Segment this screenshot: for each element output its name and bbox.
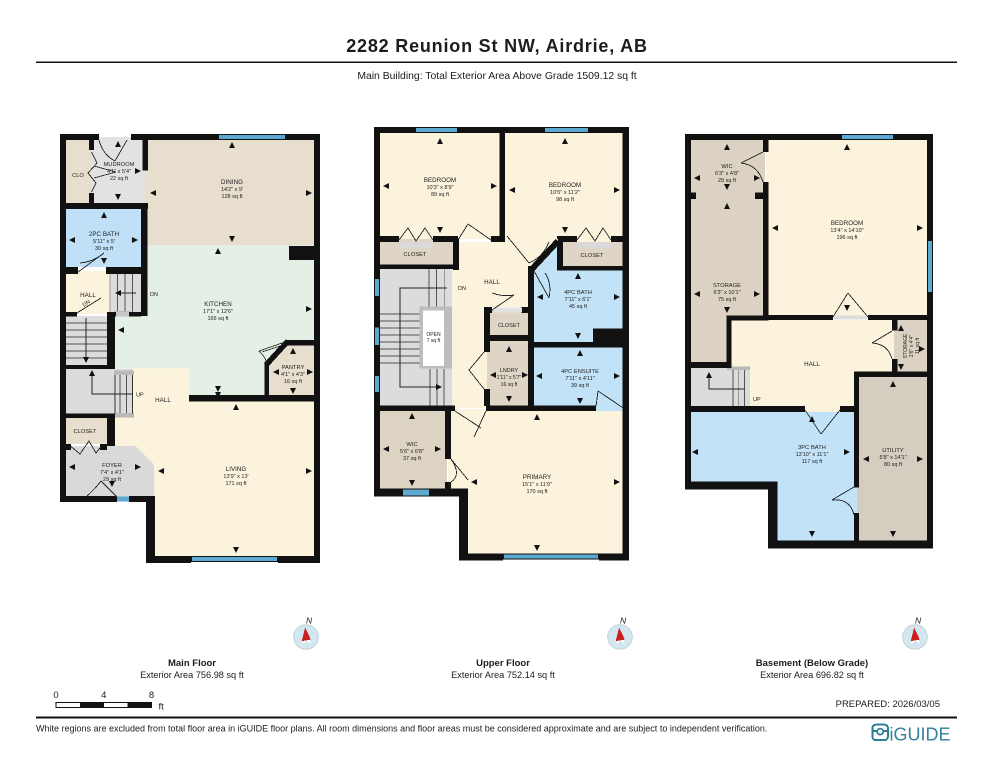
svg-text:CLOSET: CLOSET (403, 252, 427, 258)
svg-text:HALL: HALL (804, 361, 820, 368)
svg-text:0: 0 (53, 690, 58, 701)
svg-text:13'10" x 11'1": 13'10" x 11'1" (796, 452, 829, 458)
svg-text:7 sq ft: 7 sq ft (427, 338, 441, 344)
svg-text:1'11" x 5'7": 1'11" x 5'7" (497, 375, 522, 381)
svg-text:22 sq ft: 22 sq ft (110, 176, 129, 182)
svg-text:N: N (306, 616, 313, 626)
svg-text:STORAGE: STORAGE (713, 283, 741, 289)
svg-text:2PC BATH: 2PC BATH (89, 231, 119, 238)
svg-text:2282 Reunion St NW, Airdrie, A: 2282 Reunion St NW, Airdrie, AB (346, 36, 648, 56)
svg-text:PANTRY: PANTRY (282, 365, 305, 371)
svg-text:White regions are excluded fro: White regions are excluded from total fl… (36, 724, 767, 734)
svg-text:7'4" x 4'1": 7'4" x 4'1" (100, 470, 124, 476)
svg-text:4PC ENSUITE: 4PC ENSUITE (561, 369, 599, 375)
svg-text:16 sq ft: 16 sq ft (284, 379, 303, 385)
svg-text:Exterior Area 696.82 sq ft: Exterior Area 696.82 sq ft (760, 670, 864, 680)
svg-text:4'1" x 5'4": 4'1" x 5'4" (107, 169, 131, 175)
svg-text:7'11" x 6'1": 7'11" x 6'1" (565, 297, 592, 303)
svg-text:5'11" x 5': 5'11" x 5' (93, 239, 115, 245)
svg-text:BEDROOM: BEDROOM (549, 182, 581, 189)
svg-text:13'4" x 14'10": 13'4" x 14'10" (830, 228, 863, 234)
svg-text:16 sq ft: 16 sq ft (501, 382, 518, 388)
svg-text:Exterior Area 752.14 sq ft: Exterior Area 752.14 sq ft (451, 670, 555, 680)
svg-text:196 sq ft: 196 sq ft (836, 235, 858, 241)
svg-text:BEDROOM: BEDROOM (831, 220, 863, 227)
svg-text:WIC: WIC (721, 164, 732, 170)
svg-text:LNDRY: LNDRY (500, 368, 519, 374)
svg-text:37 sq ft: 37 sq ft (403, 456, 422, 462)
svg-text:UP: UP (136, 393, 144, 399)
svg-text:CLOSET: CLOSET (73, 429, 97, 435)
svg-text:iGUIDE: iGUIDE (890, 725, 951, 745)
svg-text:165 sq ft: 165 sq ft (207, 316, 229, 322)
svg-text:117 sq ft: 117 sq ft (802, 459, 823, 465)
svg-text:171 sq ft: 171 sq ft (225, 481, 247, 487)
svg-text:45 sq ft: 45 sq ft (569, 304, 588, 310)
svg-text:5'6" x 6'8": 5'6" x 6'8" (400, 449, 424, 455)
svg-text:3PC BATH: 3PC BATH (798, 445, 826, 451)
svg-text:8: 8 (149, 690, 154, 701)
svg-text:HALL: HALL (155, 397, 171, 404)
svg-text:6'3" x 4'8": 6'3" x 4'8" (715, 171, 739, 177)
svg-text:5'8" x 14'1": 5'8" x 14'1" (879, 455, 906, 461)
svg-text:Main Floor: Main Floor (168, 658, 216, 669)
svg-text:HALL: HALL (484, 279, 500, 286)
svg-text:UP: UP (753, 397, 761, 403)
svg-text:UTILITY: UTILITY (882, 448, 904, 454)
svg-text:13'9" x 13': 13'9" x 13' (223, 474, 248, 480)
svg-text:DN: DN (458, 286, 466, 292)
svg-text:LIVING: LIVING (226, 466, 247, 473)
svg-text:DN: DN (150, 292, 158, 298)
svg-text:39 sq ft: 39 sq ft (571, 383, 590, 389)
svg-text:BEDROOM: BEDROOM (424, 177, 456, 184)
svg-text:FOYER: FOYER (102, 463, 122, 469)
svg-text:128 sq ft: 128 sq ft (221, 194, 243, 200)
svg-text:N: N (620, 616, 627, 626)
svg-text:11 sq ft: 11 sq ft (915, 337, 921, 354)
svg-text:DINING: DINING (221, 179, 243, 186)
svg-text:15'1" x 11'9": 15'1" x 11'9" (522, 482, 552, 488)
svg-text:30 sq ft: 30 sq ft (95, 246, 114, 252)
svg-text:WIC: WIC (406, 442, 417, 448)
svg-text:4PC BATH: 4PC BATH (564, 290, 592, 296)
svg-text:ft: ft (159, 702, 165, 713)
svg-text:Exterior Area 756.98 sq ft: Exterior Area 756.98 sq ft (140, 670, 244, 680)
svg-text:80 sq ft: 80 sq ft (884, 462, 903, 468)
svg-text:4: 4 (101, 690, 106, 701)
svg-text:HALL: HALL (80, 292, 96, 299)
svg-text:PRIMARY: PRIMARY (523, 474, 551, 481)
svg-text:98 sq ft: 98 sq ft (556, 197, 575, 203)
svg-text:75 sq ft: 75 sq ft (718, 297, 737, 303)
svg-text:10'5" x 11'2": 10'5" x 11'2" (550, 190, 580, 196)
svg-text:Upper Floor: Upper Floor (476, 658, 530, 669)
svg-text:N: N (915, 616, 922, 626)
svg-text:170 sq ft: 170 sq ft (526, 489, 548, 495)
svg-text:CLOSET: CLOSET (580, 253, 604, 259)
svg-text:10'3" x 8'9": 10'3" x 8'9" (426, 185, 453, 191)
svg-text:29 sq ft: 29 sq ft (718, 178, 737, 184)
svg-text:6'3" x 10'1": 6'3" x 10'1" (713, 290, 740, 296)
svg-text:CLOSET: CLOSET (498, 323, 521, 329)
svg-text:Basement (Below Grade): Basement (Below Grade) (756, 658, 868, 669)
svg-text:Main Building: Total Exterior: Main Building: Total Exterior Area Above… (357, 71, 636, 82)
svg-text:MUDROOM: MUDROOM (104, 162, 135, 168)
svg-text:7'11" x 4'11": 7'11" x 4'11" (565, 376, 594, 382)
svg-text:17'1" x 12'6": 17'1" x 12'6" (203, 309, 233, 315)
svg-text:PREPARED: 2026/03/05: PREPARED: 2026/03/05 (836, 699, 940, 710)
svg-text:CLO: CLO (72, 173, 84, 179)
svg-text:KITCHEN: KITCHEN (204, 301, 232, 308)
svg-text:14'2" x 9': 14'2" x 9' (221, 187, 243, 193)
svg-text:4'1" x 4'3": 4'1" x 4'3" (281, 372, 305, 378)
svg-text:89 sq ft: 89 sq ft (431, 192, 450, 198)
